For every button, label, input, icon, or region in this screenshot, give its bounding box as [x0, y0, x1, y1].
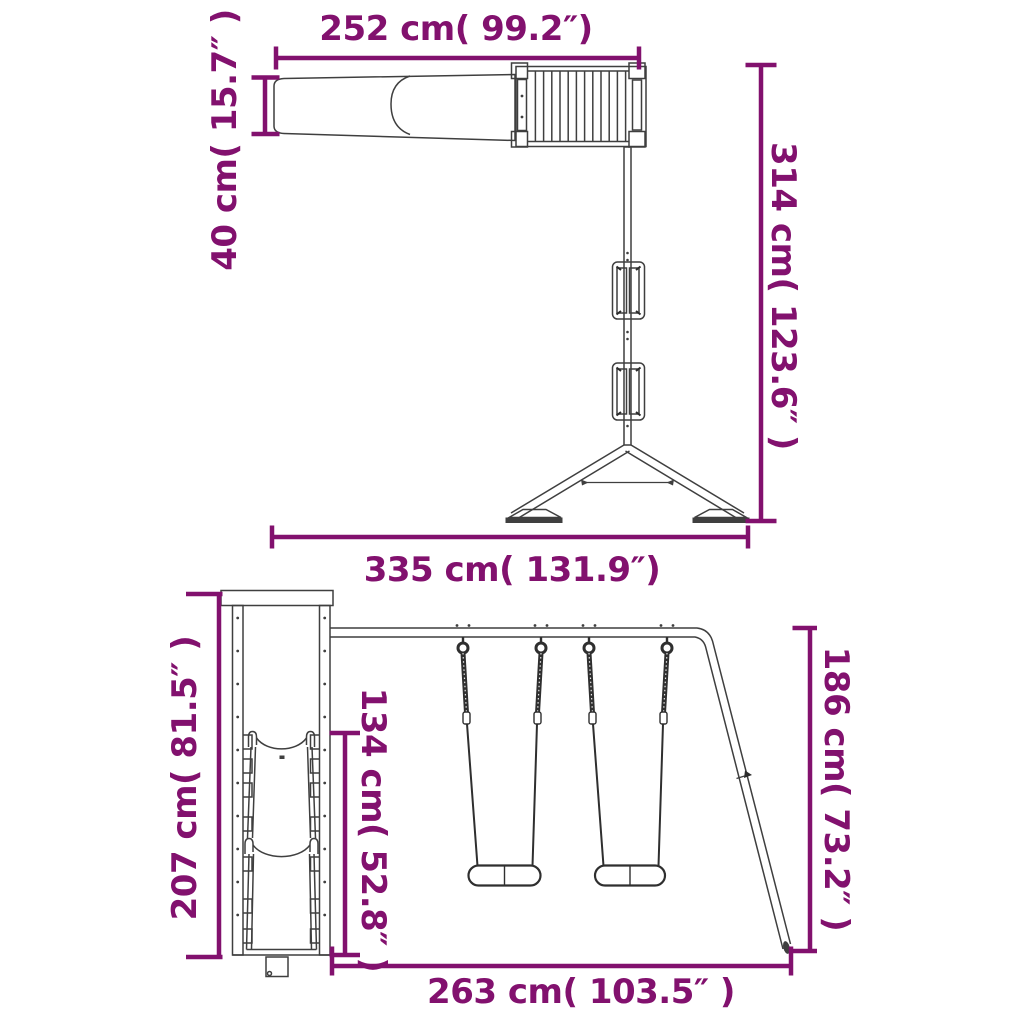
dimension-40: 40 cm( 15.7″ ) — [205, 9, 280, 271]
diagram-svg: 252 cm( 99.2″) 40 cm( 15.7″ ) 314 cm( 12… — [0, 0, 1024, 1024]
a-frame-foot — [695, 510, 747, 518]
dim-label-335: 335 cm( 131.9″) — [364, 550, 661, 590]
platform-slats — [535, 71, 625, 142]
platform-corner-post — [512, 63, 528, 79]
slide-front-upper-section — [248, 732, 316, 839]
dimension-263: 263 cm( 103.5″ ) — [332, 947, 791, 1013]
dimension-207: 207 cm( 81.5″ ) — [165, 594, 223, 957]
dimension-335: 335 cm( 131.9″) — [272, 526, 748, 591]
slide-top-view — [274, 75, 515, 141]
a-frame-top-view — [506, 445, 750, 523]
a-frame-foot-pad — [693, 518, 750, 524]
slide-section-seam — [391, 76, 410, 135]
swing-hook — [662, 643, 672, 653]
platform-corner-post — [512, 132, 528, 148]
tower-front-view — [221, 591, 333, 977]
swing-seat — [469, 866, 541, 886]
dim-label-134: 134 cm( 52.8″ ) — [353, 688, 393, 973]
rope-connector — [463, 712, 470, 724]
swing-rope-thin — [467, 724, 663, 866]
swing-seat — [595, 866, 665, 886]
dimension-186: 186 cm( 73.2″ ) — [793, 628, 857, 951]
rope-connector — [660, 712, 667, 724]
rope-connector — [534, 712, 541, 724]
swing-beam-front-view — [330, 624, 791, 954]
dim-label-314: 314 cm( 123.6″ ) — [763, 142, 803, 450]
swing-rope-wrapped — [463, 653, 667, 713]
slide-exit-foot — [266, 957, 288, 977]
swing-hanger-bracket — [613, 262, 645, 319]
slide-front-lower-section — [245, 839, 318, 950]
platform-corner-post — [629, 132, 645, 148]
dim-label-186: 186 cm( 73.2″ ) — [816, 647, 856, 932]
swing-hook — [458, 643, 468, 653]
top-view-drawing — [274, 63, 750, 523]
a-frame-foot-pad — [506, 518, 563, 524]
dimension-134: 134 cm( 52.8″ ) — [330, 688, 394, 973]
swing-hanger-bracket — [613, 363, 645, 420]
platform-top-view — [512, 63, 647, 147]
a-frame-foot — [509, 510, 561, 518]
dim-label-207: 207 cm( 81.5″ ) — [165, 636, 205, 921]
swings-front-view — [458, 637, 672, 886]
dim-label-40: 40 cm( 15.7″ ) — [205, 9, 245, 271]
dimension-314: 314 cm( 123.6″ ) — [746, 65, 804, 521]
swing-hook — [584, 643, 594, 653]
rope-connector — [589, 712, 596, 724]
front-view-drawing — [221, 591, 791, 977]
dim-label-263: 263 cm( 103.5″ ) — [427, 972, 735, 1012]
dim-label-252: 252 cm( 99.2″) — [319, 9, 592, 49]
playset-dimension-diagram: 252 cm( 99.2″) 40 cm( 15.7″ ) 314 cm( 12… — [0, 0, 1024, 1024]
dimension-252: 252 cm( 99.2″) — [276, 9, 639, 70]
swing-hook — [536, 643, 546, 653]
